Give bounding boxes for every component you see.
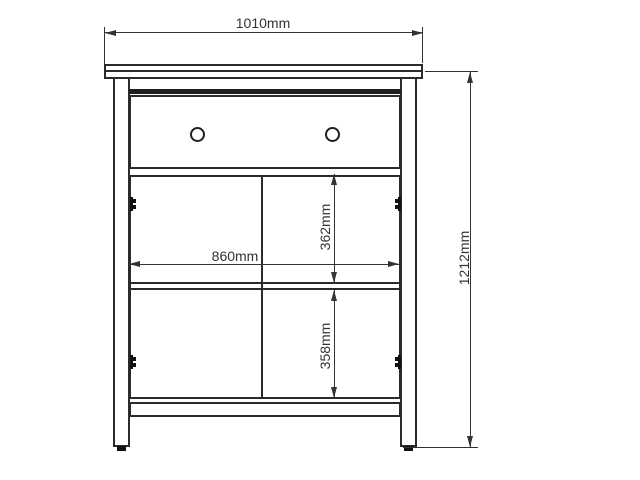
arrowhead-icon <box>331 174 337 185</box>
shelf-bottom-line <box>129 288 401 290</box>
arrowhead-icon <box>105 30 116 36</box>
extension-line <box>403 447 478 448</box>
arrowhead-icon <box>331 272 337 283</box>
hinge-icon <box>394 196 401 212</box>
arrowhead-icon <box>129 261 140 267</box>
cabinet-right-leg <box>400 77 417 447</box>
arrowhead-icon <box>388 261 399 267</box>
shelf-top-line <box>129 282 401 284</box>
hinge-icon <box>394 354 401 370</box>
door-compartment <box>129 175 401 399</box>
dim-line-inner-width <box>129 264 399 265</box>
arrowhead-icon <box>467 72 473 83</box>
arrowhead-icon <box>331 290 337 301</box>
technical-drawing-canvas: 1010mm 860mm 362mm 358mm <box>0 0 640 480</box>
dim-line-lower-section <box>334 290 335 398</box>
drawer-knob-right-icon <box>325 127 340 142</box>
dim-line-overall-width <box>105 32 423 33</box>
extension-line <box>422 27 423 63</box>
dim-label-overall-height: 1212mm <box>457 223 471 293</box>
dim-label-upper-section: 362mm <box>318 197 332 257</box>
bottom-rail <box>129 402 401 417</box>
top-panel-edge-line <box>106 70 421 72</box>
dim-line-upper-section <box>334 174 335 283</box>
extension-line <box>104 27 105 65</box>
drawer-front <box>129 95 401 169</box>
left-leg-foot <box>117 446 126 451</box>
dim-label-inner-width: 860mm <box>185 249 285 263</box>
cabinet-left-leg <box>113 77 130 447</box>
top-rail-band <box>129 89 401 94</box>
hinge-icon <box>130 196 137 212</box>
arrowhead-icon <box>467 436 473 447</box>
dim-label-overall-width: 1010mm <box>210 16 316 30</box>
dim-label-lower-section: 358mm <box>318 316 332 376</box>
door-divider-line <box>261 175 263 399</box>
hinge-icon <box>130 354 137 370</box>
drawer-knob-left-icon <box>190 127 205 142</box>
arrowhead-icon <box>331 387 337 398</box>
